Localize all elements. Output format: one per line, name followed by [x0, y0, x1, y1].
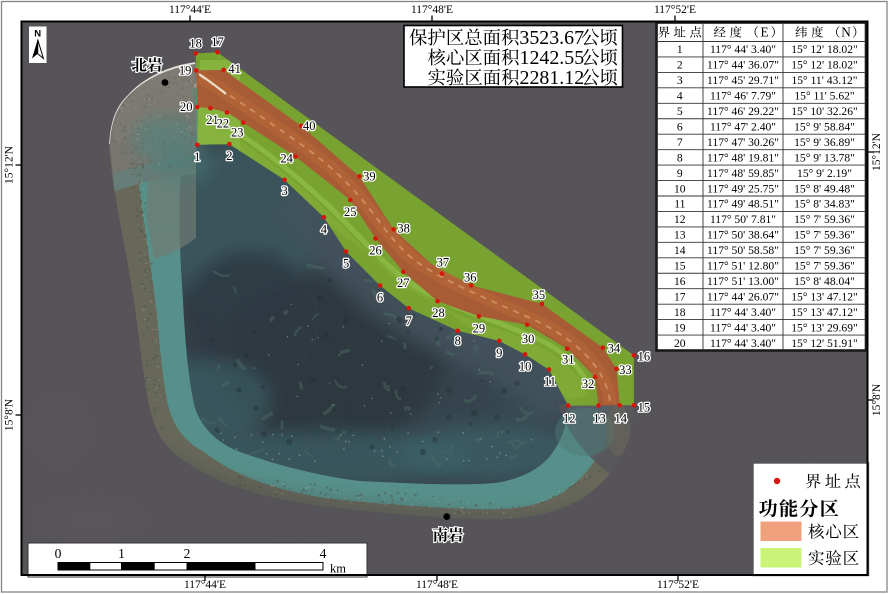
svg-text:37: 37: [437, 256, 450, 270]
svg-text:15°8'N: 15°8'N: [871, 383, 883, 416]
svg-text:117°52'E: 117°52'E: [657, 579, 699, 591]
svg-text:10: 10: [519, 359, 532, 373]
svg-text:20: 20: [674, 337, 686, 350]
svg-text:8: 8: [677, 151, 683, 164]
svg-text:117°52'E: 117°52'E: [654, 4, 696, 16]
svg-text:15° 8' 34.83": 15° 8' 34.83": [794, 198, 855, 211]
svg-text:117° 46' 29.22": 117° 46' 29.22": [707, 105, 779, 118]
svg-text:12: 12: [563, 412, 576, 426]
svg-text:15° 11' 43.12": 15° 11' 43.12": [791, 74, 857, 87]
svg-text:33: 33: [619, 363, 632, 377]
svg-text:15° 8' 49.48": 15° 8' 49.48": [794, 182, 855, 195]
svg-text:14: 14: [674, 244, 686, 257]
svg-text:117° 48' 59.85": 117° 48' 59.85": [707, 167, 779, 180]
svg-text:117° 49' 25.75": 117° 49' 25.75": [707, 182, 779, 195]
svg-text:24: 24: [280, 152, 293, 166]
svg-text:29: 29: [473, 321, 486, 335]
svg-text:15° 13' 47.12": 15° 13' 47.12": [791, 306, 858, 319]
svg-text:20: 20: [180, 100, 193, 114]
svg-text:1242.55: 1242.55: [520, 47, 585, 69]
svg-text:2: 2: [677, 59, 683, 72]
svg-text:117° 50' 58.58": 117° 50' 58.58": [707, 244, 779, 257]
svg-text:1: 1: [118, 546, 125, 561]
svg-text:27: 27: [397, 276, 410, 290]
svg-text:3523.67: 3523.67: [519, 27, 584, 49]
svg-text:117° 44' 3.40": 117° 44' 3.40": [710, 43, 776, 56]
svg-text:40: 40: [303, 119, 316, 133]
svg-text:117° 51' 12.80": 117° 51' 12.80": [707, 260, 779, 273]
svg-text:15° 8' 48.04": 15° 8' 48.04": [794, 275, 855, 288]
svg-text:15: 15: [638, 400, 651, 414]
svg-text:117° 44' 3.40": 117° 44' 3.40": [710, 306, 776, 319]
svg-text:36: 36: [464, 270, 477, 284]
svg-text:1: 1: [677, 43, 683, 56]
svg-text:E: E: [760, 25, 768, 40]
svg-text:1: 1: [194, 150, 200, 164]
svg-text:38: 38: [397, 221, 410, 235]
svg-text:117° 47' 30.26": 117° 47' 30.26": [707, 136, 779, 149]
svg-text:30: 30: [522, 332, 535, 346]
svg-text:11: 11: [544, 375, 556, 389]
svg-text:39: 39: [363, 169, 376, 183]
svg-text:117° 50' 7.81": 117° 50' 7.81": [710, 213, 776, 226]
svg-text:15° 10' 32.26": 15° 10' 32.26": [791, 105, 858, 118]
svg-text:14: 14: [614, 411, 627, 425]
svg-text:4: 4: [320, 546, 327, 561]
svg-text:41: 41: [228, 62, 241, 76]
svg-text:15° 7' 59.36": 15° 7' 59.36": [794, 260, 855, 273]
svg-text:31: 31: [562, 353, 575, 367]
svg-text:6: 6: [677, 120, 683, 133]
svg-text:117° 44' 3.40": 117° 44' 3.40": [710, 321, 776, 334]
svg-text:15° 13' 29.69": 15° 13' 29.69": [791, 321, 858, 334]
svg-text:34: 34: [608, 342, 621, 356]
svg-text:15°8'N: 15°8'N: [4, 398, 16, 431]
svg-text:117° 45' 29.71": 117° 45' 29.71": [707, 74, 779, 87]
svg-text:117° 47' 2.40": 117° 47' 2.40": [710, 120, 776, 133]
svg-text:15° 7' 59.36": 15° 7' 59.36": [794, 213, 855, 226]
svg-text:2281.12: 2281.12: [520, 67, 585, 89]
svg-text:15° 9' 36.89": 15° 9' 36.89": [794, 136, 855, 149]
svg-text:5: 5: [677, 105, 683, 118]
svg-text:13: 13: [593, 412, 606, 426]
svg-text:25: 25: [344, 205, 357, 219]
svg-text:117° 46' 7.79": 117° 46' 7.79": [710, 90, 776, 103]
svg-text:2: 2: [226, 149, 232, 163]
svg-text:18: 18: [674, 306, 686, 319]
svg-text:3: 3: [281, 184, 287, 198]
svg-text:15° 9' 13.78": 15° 9' 13.78": [794, 151, 855, 164]
svg-text:117° 49' 48.51": 117° 49' 48.51": [707, 198, 779, 211]
svg-text:35: 35: [533, 288, 546, 302]
svg-text:4: 4: [321, 222, 328, 236]
svg-text:17: 17: [211, 35, 224, 49]
svg-text:18: 18: [189, 37, 202, 51]
svg-text:6: 6: [377, 291, 383, 305]
svg-text:117° 44' 36.07": 117° 44' 36.07": [707, 59, 779, 72]
svg-text:5: 5: [343, 257, 349, 271]
svg-text:2: 2: [184, 546, 191, 561]
svg-text:28: 28: [432, 306, 445, 320]
svg-text:117°44'E: 117°44'E: [169, 4, 211, 16]
svg-text:7: 7: [677, 136, 683, 149]
svg-text:7: 7: [406, 314, 412, 328]
svg-text:117° 44' 3.40": 117° 44' 3.40": [710, 337, 776, 350]
svg-text:N: N: [841, 25, 851, 40]
svg-text:15° 7' 59.36": 15° 7' 59.36": [794, 229, 855, 242]
svg-text:3: 3: [677, 74, 683, 87]
svg-text:15° 13' 47.12": 15° 13' 47.12": [791, 290, 858, 303]
svg-text:15° 9' 2.19": 15° 9' 2.19": [797, 167, 852, 180]
svg-text:9: 9: [496, 346, 502, 360]
svg-text:117° 44' 26.07": 117° 44' 26.07": [707, 290, 779, 303]
svg-text:117°48'E: 117°48'E: [411, 4, 453, 16]
svg-text:117° 48' 19.81": 117° 48' 19.81": [707, 151, 779, 164]
svg-text:9: 9: [677, 167, 683, 180]
svg-text:17: 17: [674, 290, 686, 303]
svg-text:22: 22: [217, 117, 230, 131]
svg-text:15° 9' 58.84": 15° 9' 58.84": [794, 120, 855, 133]
svg-text:23: 23: [231, 126, 244, 140]
svg-text:117°44'E: 117°44'E: [184, 579, 226, 591]
svg-text:117° 51' 13.00": 117° 51' 13.00": [707, 275, 779, 288]
svg-text:13: 13: [674, 229, 686, 242]
svg-text:11: 11: [674, 198, 685, 211]
svg-text:26: 26: [369, 244, 382, 258]
svg-text:16: 16: [674, 275, 686, 288]
svg-text:32: 32: [582, 377, 595, 391]
svg-text:15° 12' 18.02": 15° 12' 18.02": [791, 43, 858, 56]
svg-text:8: 8: [455, 334, 461, 348]
svg-text:15°12'N: 15°12'N: [871, 132, 883, 171]
svg-text:16: 16: [638, 349, 651, 363]
svg-text:19: 19: [179, 63, 192, 77]
svg-text:15° 12' 18.02": 15° 12' 18.02": [791, 59, 858, 72]
svg-text:15° 12' 51.91": 15° 12' 51.91": [791, 337, 858, 350]
svg-text:0: 0: [55, 546, 62, 561]
svg-text:15°12'N: 15°12'N: [4, 145, 16, 184]
svg-text:117° 50' 38.64": 117° 50' 38.64": [707, 229, 779, 242]
svg-text:N: N: [34, 29, 41, 40]
svg-text:4: 4: [677, 90, 683, 103]
svg-text:km: km: [330, 562, 346, 576]
svg-text:15: 15: [674, 260, 686, 273]
svg-text:19: 19: [674, 321, 686, 334]
svg-text:10: 10: [674, 182, 686, 195]
svg-text:12: 12: [674, 213, 686, 226]
svg-text:15° 7' 59.36": 15° 7' 59.36": [794, 244, 855, 257]
svg-text:117°48'E: 117°48'E: [416, 579, 458, 591]
svg-text:15° 11' 5.62": 15° 11' 5.62": [794, 90, 855, 103]
